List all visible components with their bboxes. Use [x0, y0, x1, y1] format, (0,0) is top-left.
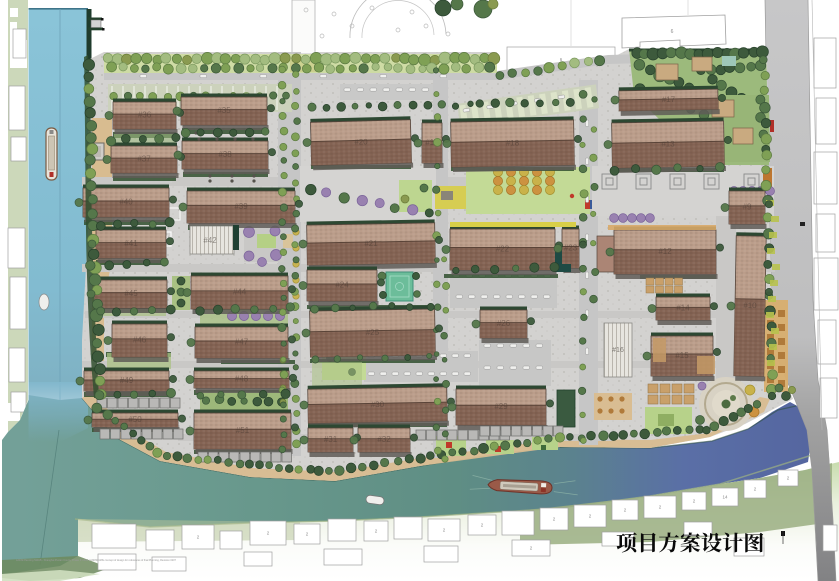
svg-text:#45: #45 [124, 289, 138, 298]
svg-text:#17: #17 [662, 95, 676, 104]
svg-text:#42: #42 [203, 236, 217, 245]
svg-text:#51: #51 [236, 426, 250, 435]
svg-text:#37: #37 [137, 155, 151, 164]
svg-text:#31: #31 [324, 435, 338, 444]
svg-text:#18: #18 [506, 138, 520, 147]
svg-text:#9: #9 [743, 203, 752, 212]
svg-text:#24: #24 [335, 281, 349, 290]
svg-text:#22: #22 [496, 245, 510, 254]
svg-text:#50: #50 [128, 415, 142, 424]
svg-text:#25: #25 [366, 328, 380, 337]
svg-text:#49: #49 [120, 376, 134, 385]
svg-text:#30: #30 [371, 400, 385, 409]
svg-text:#15: #15 [675, 351, 689, 360]
svg-text:#48: #48 [235, 375, 249, 384]
svg-text:#36: #36 [138, 111, 152, 120]
svg-text:#40: #40 [119, 198, 133, 207]
svg-text:6: 6 [671, 29, 674, 35]
svg-text:#32: #32 [377, 435, 391, 444]
svg-text:#23: #23 [564, 244, 578, 253]
svg-text:#13: #13 [661, 139, 675, 148]
svg-text:#47: #47 [235, 338, 249, 347]
svg-text:#20: #20 [354, 137, 368, 146]
svg-text:#14: #14 [676, 304, 690, 313]
svg-text:#10: #10 [743, 301, 757, 310]
svg-text:14: 14 [722, 495, 728, 500]
svg-text:L2009 Planning SWAB - Shanghai: L2009 Planning SWAB - Shanghai Puxian Co… [16, 558, 177, 562]
svg-text:#35: #35 [217, 106, 231, 115]
svg-text:#26: #26 [497, 319, 511, 328]
svg-text:#38: #38 [218, 150, 232, 159]
svg-text:#21: #21 [364, 239, 378, 248]
svg-text:#39: #39 [234, 202, 248, 211]
svg-text:#29: #29 [494, 402, 508, 411]
svg-text:#41: #41 [124, 239, 138, 248]
svg-text:#16: #16 [612, 347, 624, 354]
svg-text:#46: #46 [133, 336, 147, 345]
svg-text:#12: #12 [658, 247, 672, 256]
svg-text:#44: #44 [233, 288, 247, 297]
